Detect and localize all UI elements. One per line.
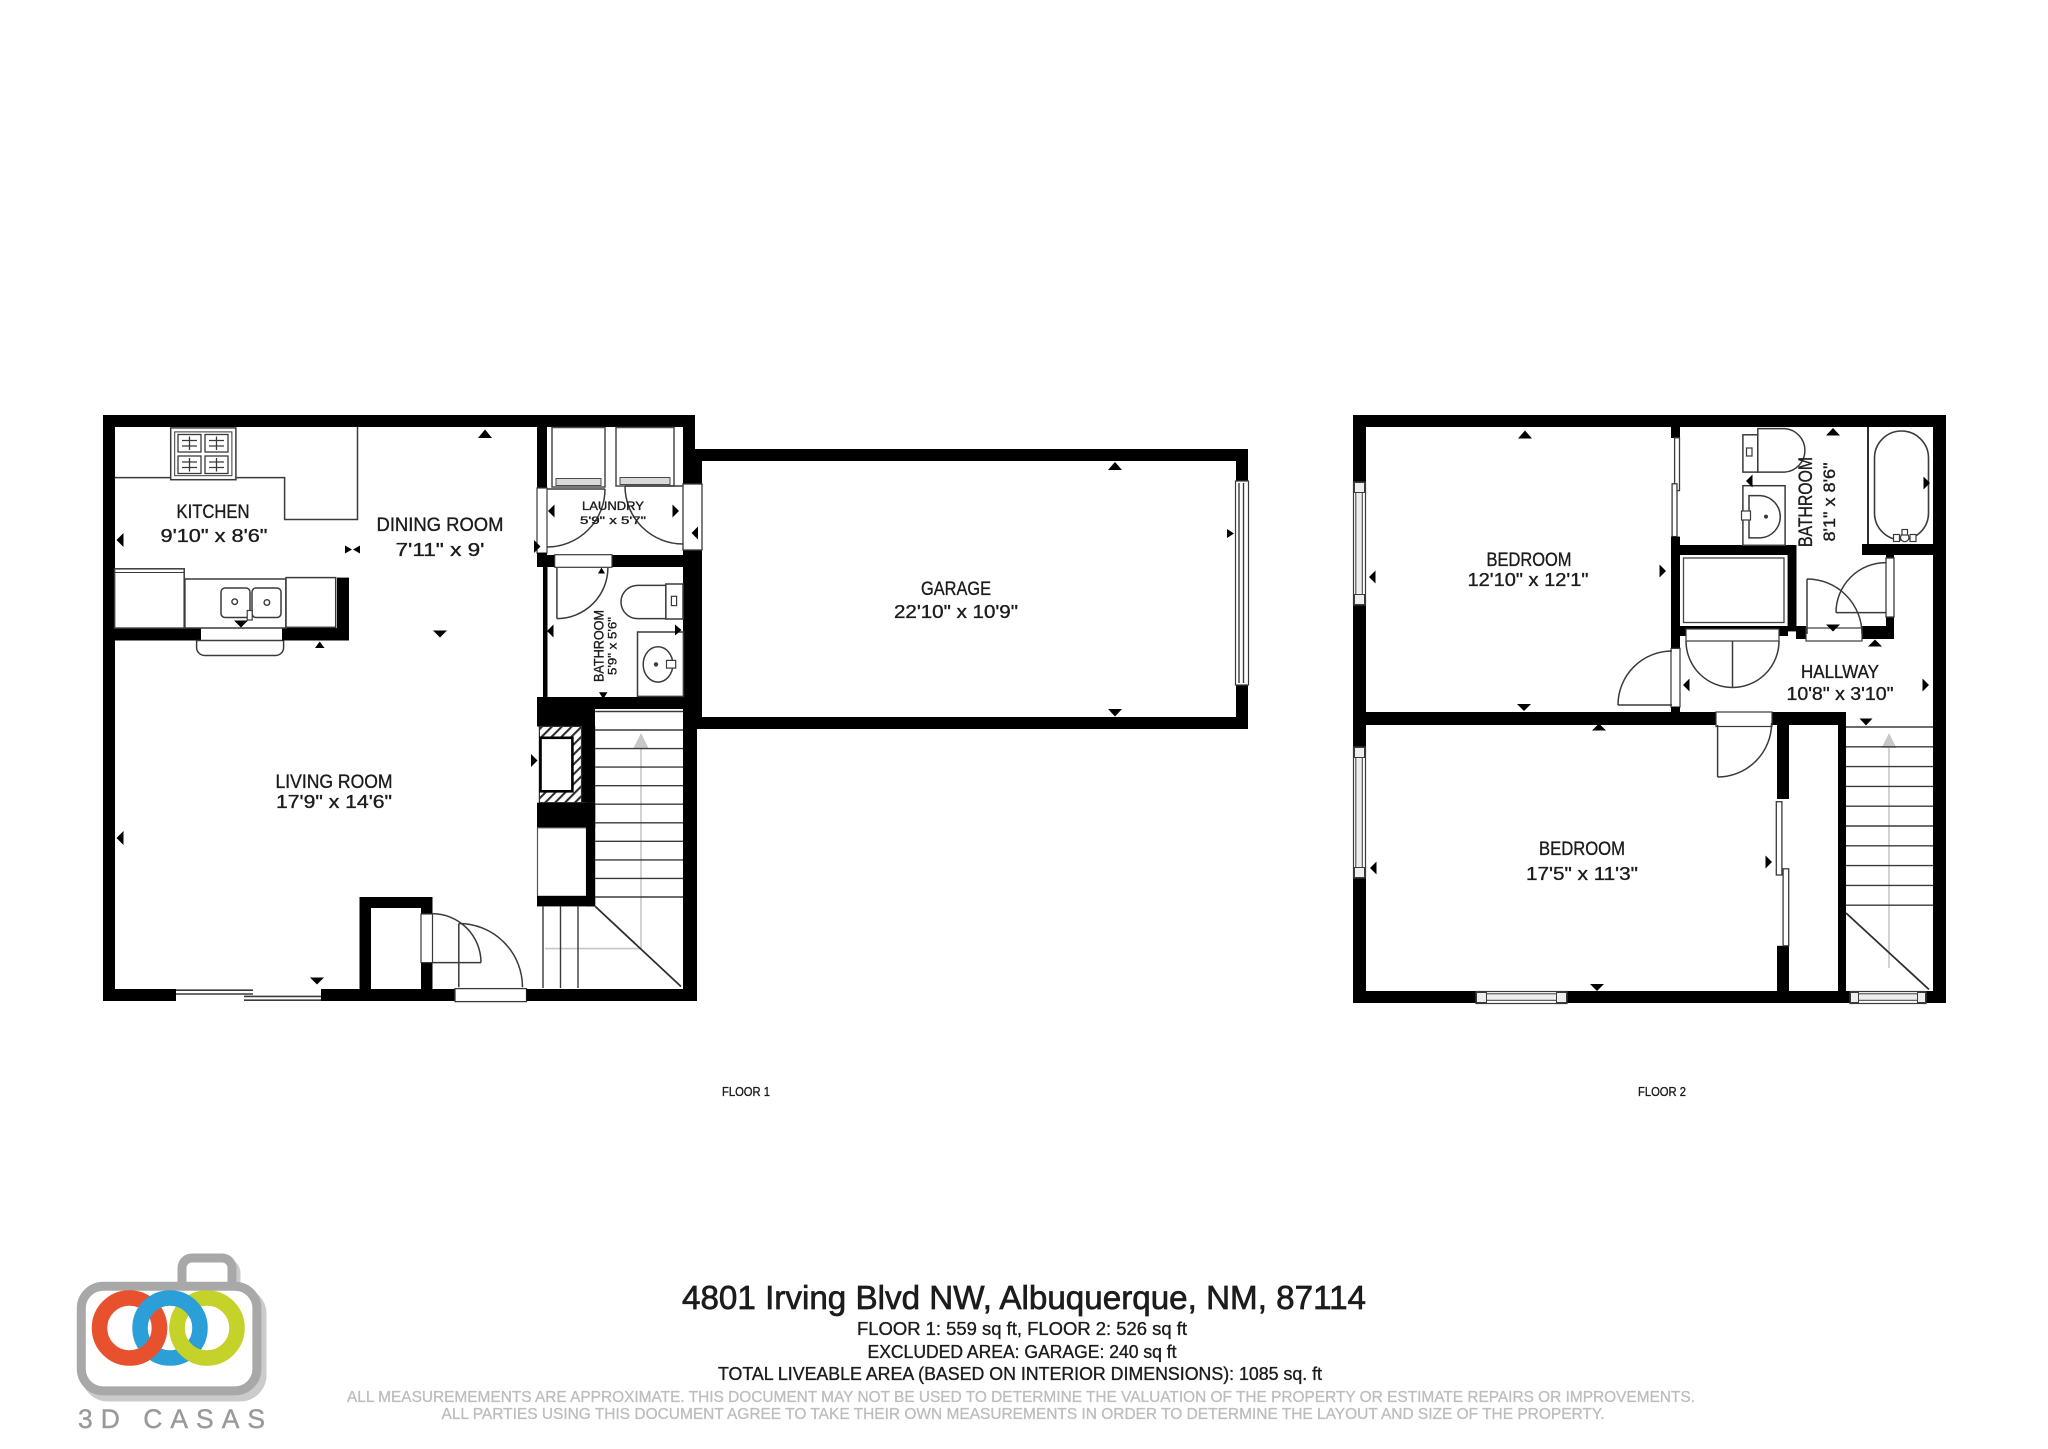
svg-text:12'10" x 12'1": 12'10" x 12'1" [1468, 570, 1589, 590]
svg-text:LIVING ROOM: LIVING ROOM [276, 772, 393, 793]
svg-text:10'8" x 3'10": 10'8" x 3'10" [1787, 684, 1894, 704]
svg-text:17'9" x 14'6": 17'9" x 14'6" [276, 792, 392, 812]
svg-text:ALL PARTIES USING THIS DOCUMEN: ALL PARTIES USING THIS DOCUMENT AGREE TO… [442, 1406, 1605, 1423]
svg-text:HALLWAY: HALLWAY [1801, 662, 1879, 682]
svg-text:3D CASAS: 3D CASAS [78, 1404, 273, 1434]
svg-text:BEDROOM: BEDROOM [1487, 550, 1572, 571]
svg-text:7'11" x 9': 7'11" x 9' [396, 540, 485, 560]
svg-text:BATHROOM: BATHROOM [1796, 457, 1817, 547]
svg-text:KITCHEN: KITCHEN [177, 502, 250, 523]
svg-text:GARAGE: GARAGE [921, 579, 991, 600]
svg-text:FLOOR 1: FLOOR 1 [722, 1085, 770, 1099]
svg-text:BATHROOM: BATHROOM [592, 610, 607, 682]
svg-text:DINING ROOM: DINING ROOM [377, 515, 504, 536]
svg-text:EXCLUDED AREA: GARAGE: 240 sq: EXCLUDED AREA: GARAGE: 240 sq ft [868, 1342, 1177, 1362]
svg-text:LAUNDRY: LAUNDRY [582, 499, 644, 513]
svg-text:5'9" x 5'7": 5'9" x 5'7" [580, 515, 646, 527]
svg-text:TOTAL LIVEABLE AREA (BASED ON: TOTAL LIVEABLE AREA (BASED ON INTERIOR D… [718, 1364, 1322, 1384]
svg-text:17'5" x 11'3": 17'5" x 11'3" [1526, 864, 1638, 884]
svg-text:22'10" x 10'9": 22'10" x 10'9" [894, 602, 1018, 622]
svg-text:FLOOR 1: 559 sq ft, FLOOR 2: 5: FLOOR 1: 559 sq ft, FLOOR 2: 526 sq ft [857, 1319, 1187, 1339]
svg-text:FLOOR 2: FLOOR 2 [1638, 1085, 1686, 1099]
svg-text:9'10" x 8'6": 9'10" x 8'6" [161, 526, 268, 546]
svg-text:ALL MEASUREMEMENTS ARE APPROXI: ALL MEASUREMEMENTS ARE APPROXIMATE. THIS… [347, 1389, 1695, 1406]
svg-text:8'1" x 8'6": 8'1" x 8'6" [1820, 463, 1839, 542]
svg-text:BEDROOM: BEDROOM [1539, 839, 1625, 860]
svg-text:5'9" x 5'6": 5'9" x 5'6" [608, 617, 620, 675]
svg-text:4801 Irving Blvd NW, Albuquerq: 4801 Irving Blvd NW, Albuquerque, NM, 87… [682, 1279, 1366, 1316]
